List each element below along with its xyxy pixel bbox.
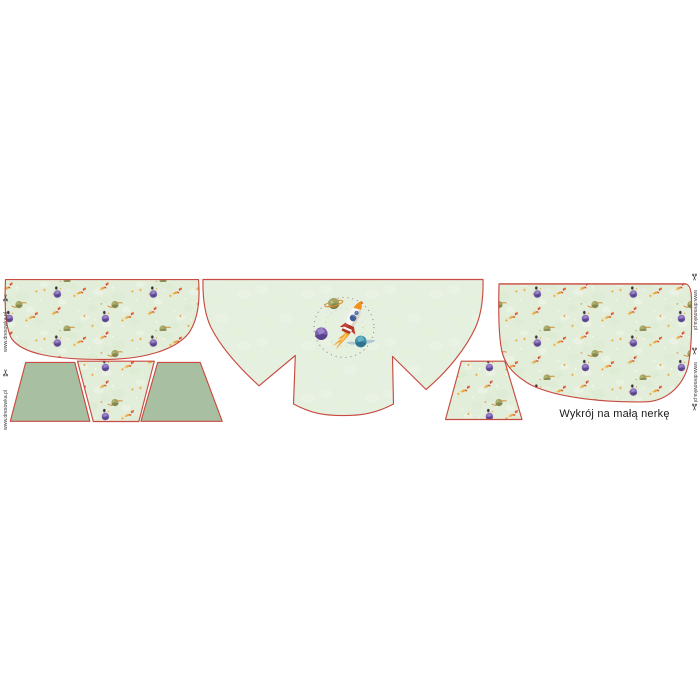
svg-text:www.dresowka.pl: www.dresowka.pl <box>692 362 698 402</box>
svg-text:www.dresowka.pl: www.dresowka.pl <box>692 290 698 330</box>
svg-text:www.dresowka.pl: www.dresowka.pl <box>3 390 9 430</box>
svg-text:Wykrój na małą nerkę: Wykrój na małą nerkę <box>559 408 669 420</box>
svg-text:www.dresowka.pl: www.dresowka.pl <box>3 312 9 352</box>
